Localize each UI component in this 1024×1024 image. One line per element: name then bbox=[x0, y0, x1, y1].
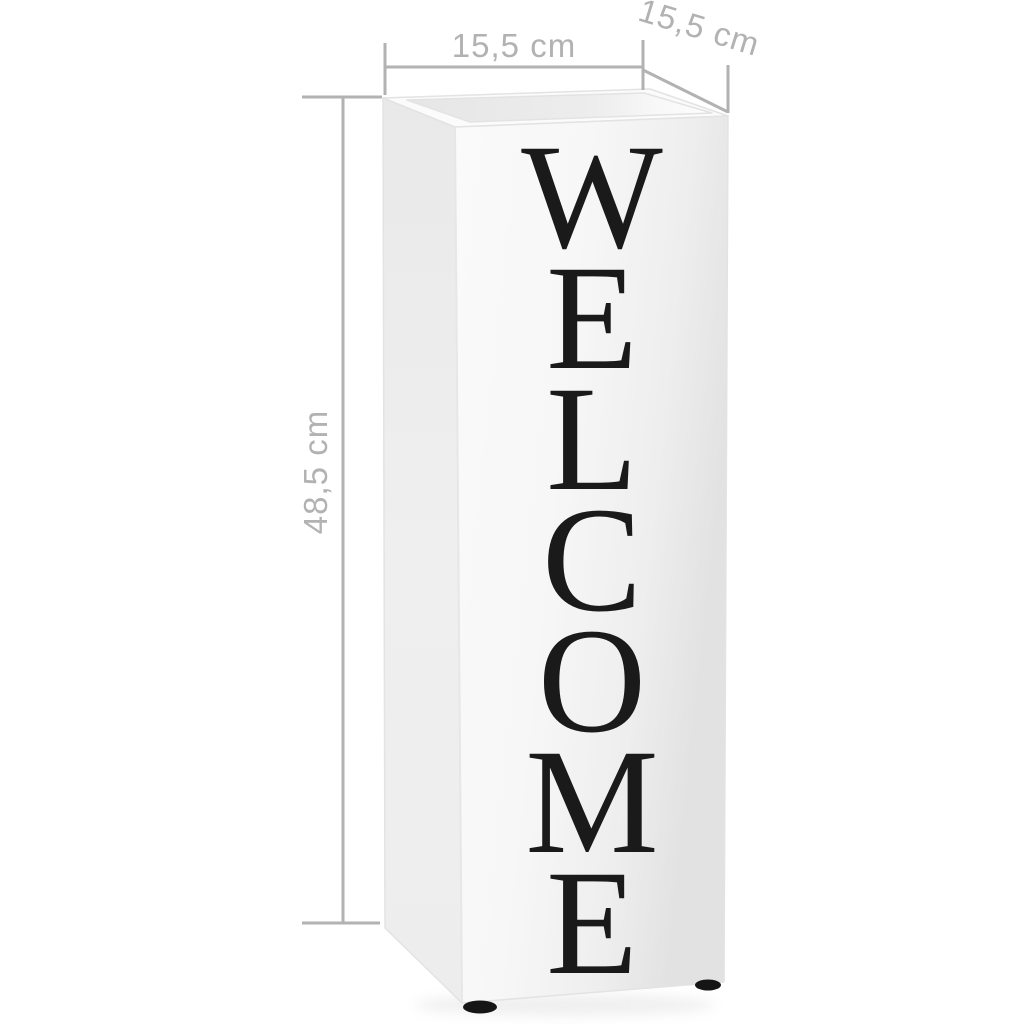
box-left-face bbox=[383, 98, 462, 1003]
product-image-canvas: 15,5 cm 15,5 cm 48,5 cm W E L C O M E bbox=[0, 0, 1024, 1024]
umbrella-stand-diagram: 15,5 cm 15,5 cm 48,5 cm W E L C O M E bbox=[0, 0, 1024, 1024]
height-dimension-label: 48,5 cm bbox=[297, 410, 334, 534]
welcome-text: W E L C O M E bbox=[521, 114, 663, 1006]
depth-dimension-label: 15,5 cm bbox=[634, 0, 764, 63]
box-foot-left bbox=[463, 1001, 497, 1014]
box-foot-right bbox=[695, 980, 721, 991]
width-dimension-label: 15,5 cm bbox=[452, 27, 576, 64]
welcome-letter-7: E bbox=[546, 840, 638, 1006]
